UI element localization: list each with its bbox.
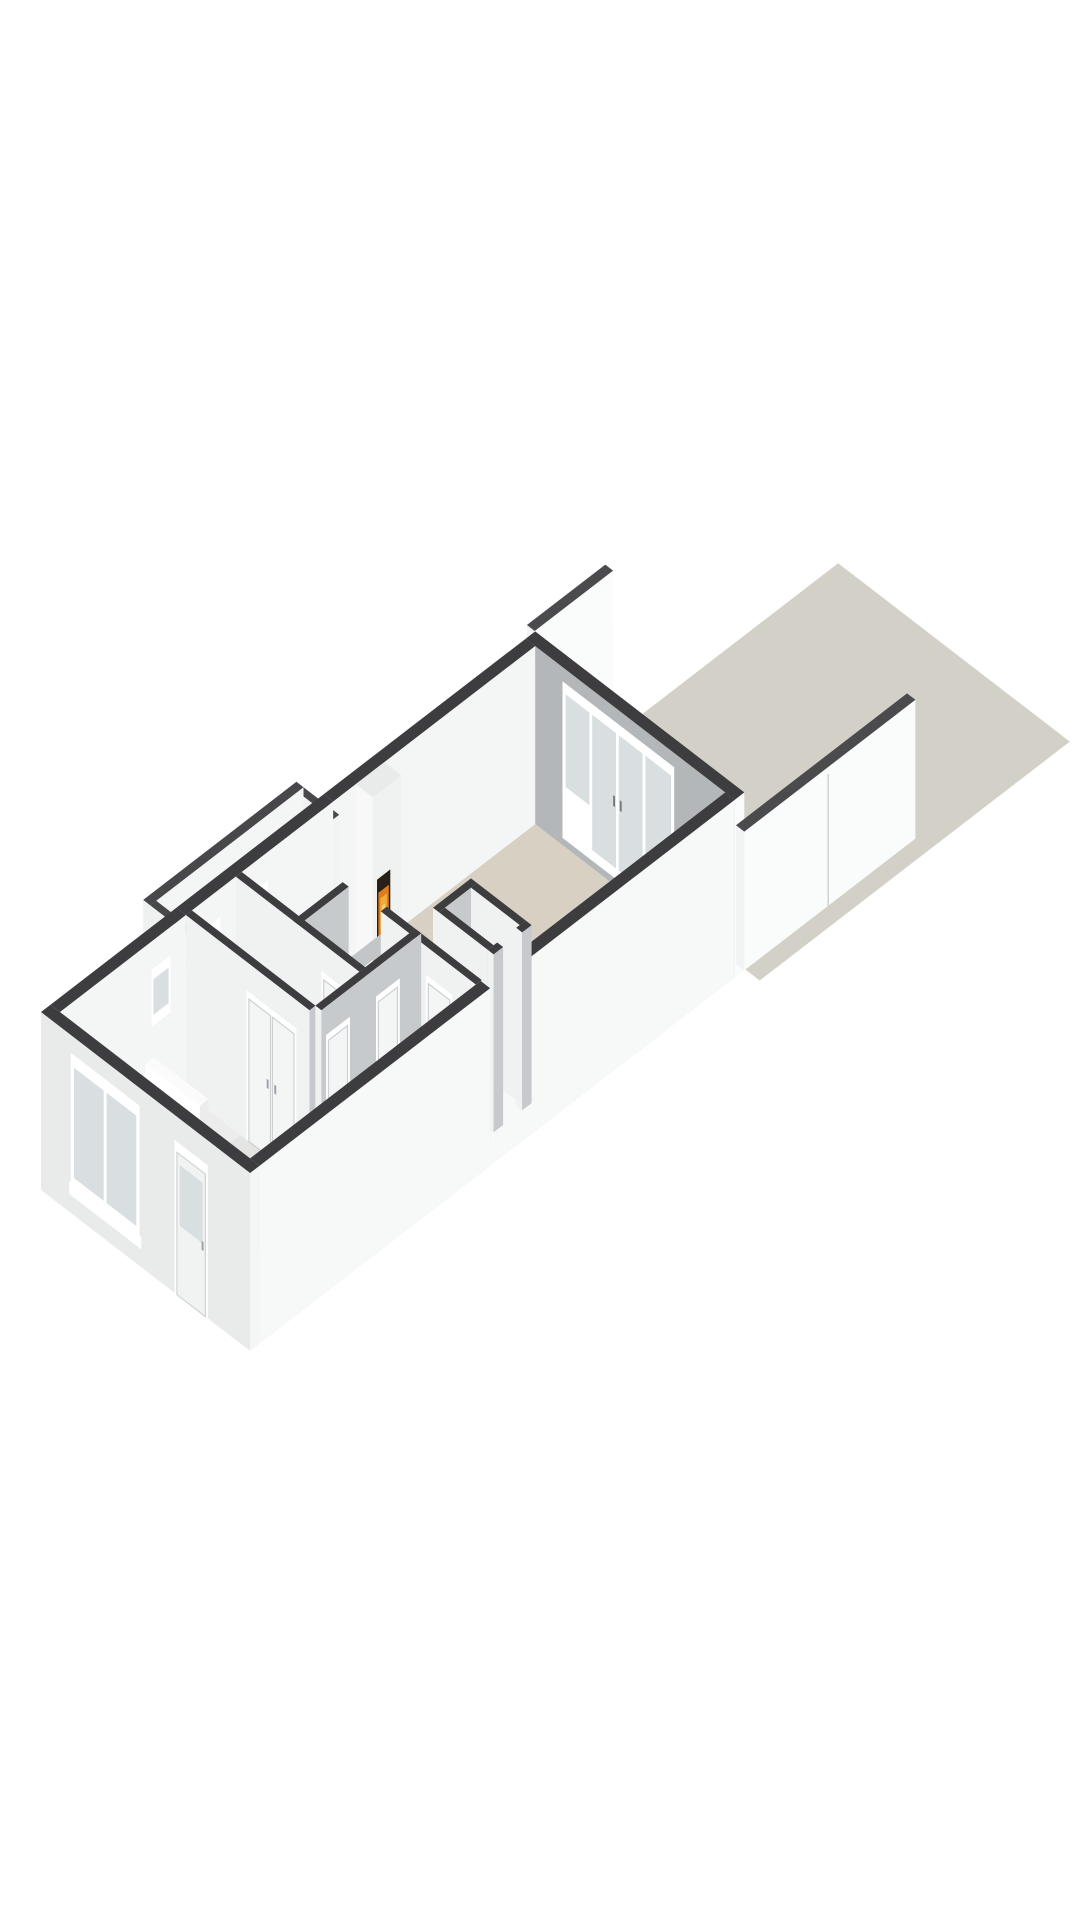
rear-window-glass-left [566,694,590,805]
front-door-handle [202,1241,204,1251]
rear-door-handle-right [620,800,622,812]
front-facade-wall-side [250,1166,260,1351]
hall-door-handle-left [267,1079,269,1089]
pantry-wall-side-a-side [494,947,504,1132]
pantry-wall-side-b-side [522,925,532,1110]
front-window-glass-2 [107,1093,137,1226]
floorplan-viewport [0,0,1080,1920]
rear-door-handle-left [613,795,615,807]
hall-door-handle-right [274,1085,276,1095]
fence-panel-seam [827,774,829,907]
pantry-wall-side-b-face [516,928,522,1111]
garden-fence-wall-face [736,825,744,970]
front-window-glass-1 [74,1068,104,1201]
rear-door-glass-left [592,715,616,869]
floorplan-3d-render [0,0,1080,1920]
hall-door-leaf-left [249,999,271,1158]
